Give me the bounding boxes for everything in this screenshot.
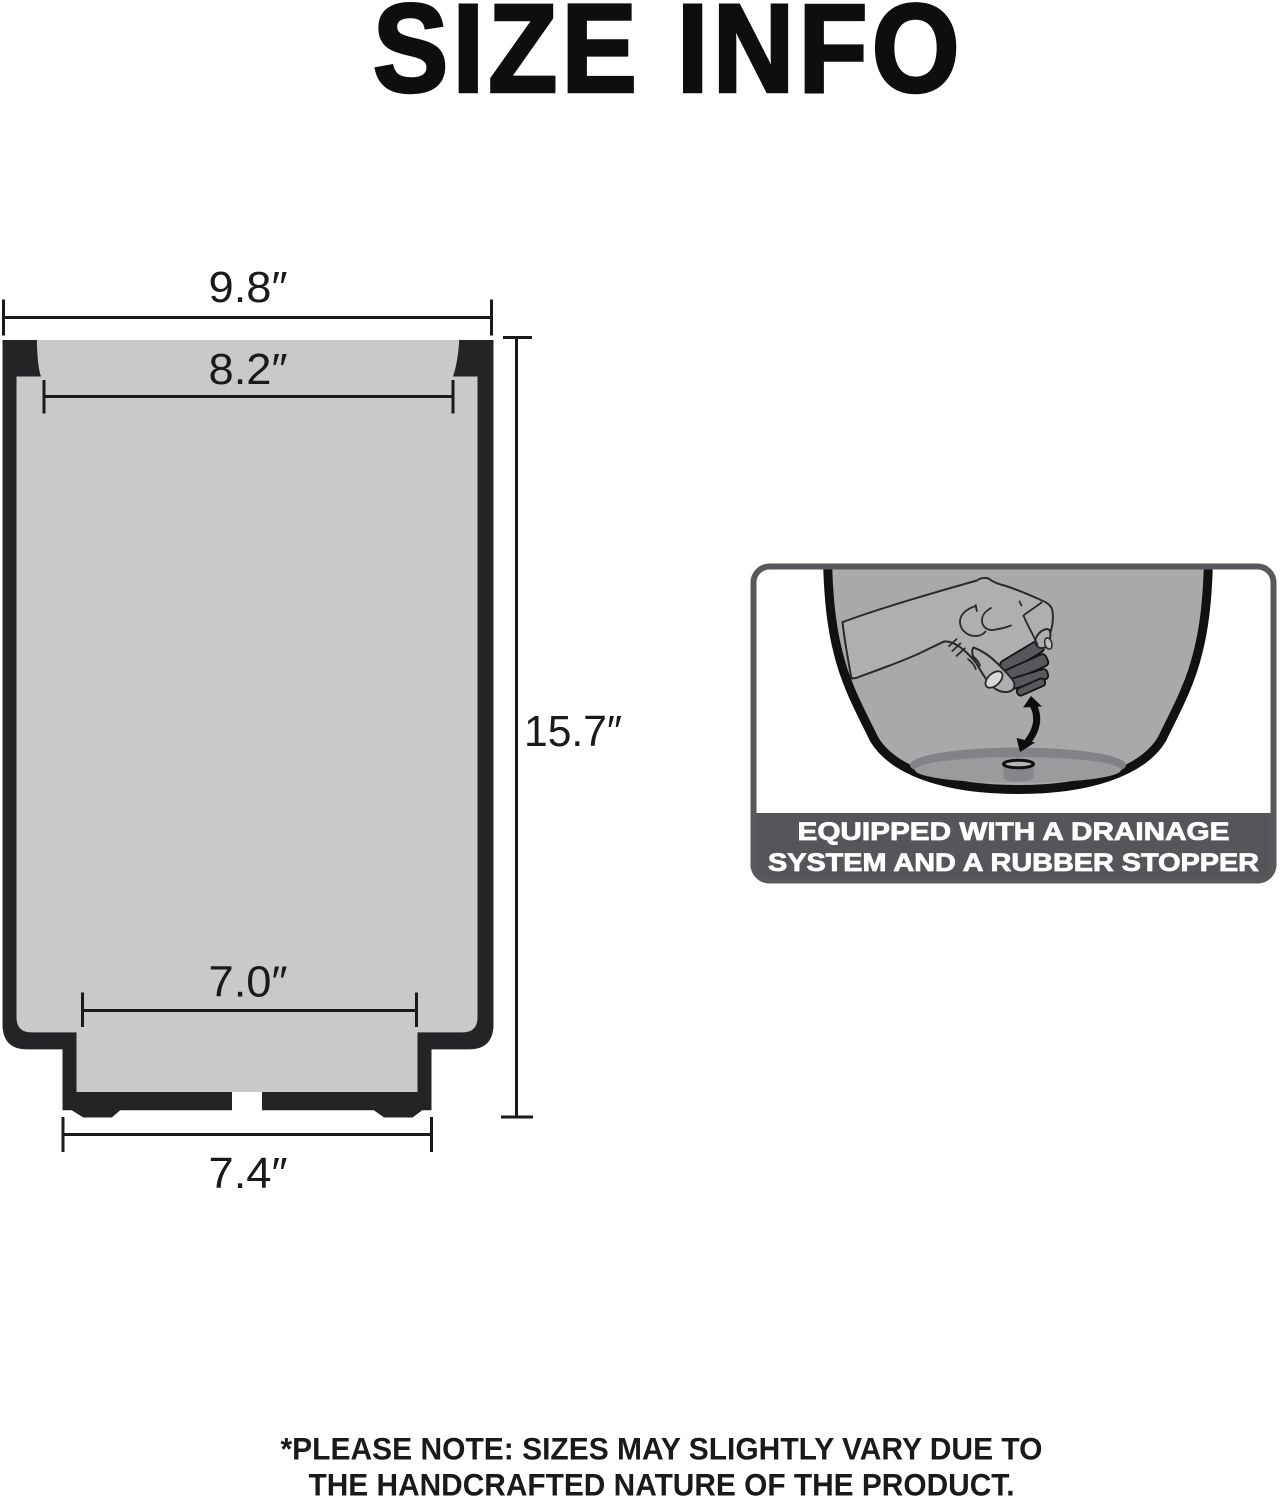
svg-text:7.4″: 7.4″ (209, 1149, 288, 1198)
svg-text:*PLEASE NOTE: SIZES MAY SLIGHT: *PLEASE NOTE: SIZES MAY SLIGHTLY VARY DU… (281, 1431, 1043, 1467)
svg-text:EQUIPPED WITH A DRAINAGE: EQUIPPED WITH A DRAINAGE (798, 818, 1230, 846)
svg-text:15.7″: 15.7″ (524, 707, 622, 756)
svg-text:SIZE INFO: SIZE INFO (373, 0, 964, 119)
svg-text:9.8″: 9.8″ (209, 263, 288, 312)
svg-text:7.0″: 7.0″ (209, 958, 288, 1007)
svg-text:8.2″: 8.2″ (209, 345, 288, 394)
svg-text:THE HANDCRAFTED NATURE OF THE: THE HANDCRAFTED NATURE OF THE PRODUCT. (309, 1467, 1015, 1500)
svg-text:SYSTEM AND A RUBBER STOPPER: SYSTEM AND A RUBBER STOPPER (768, 849, 1259, 877)
